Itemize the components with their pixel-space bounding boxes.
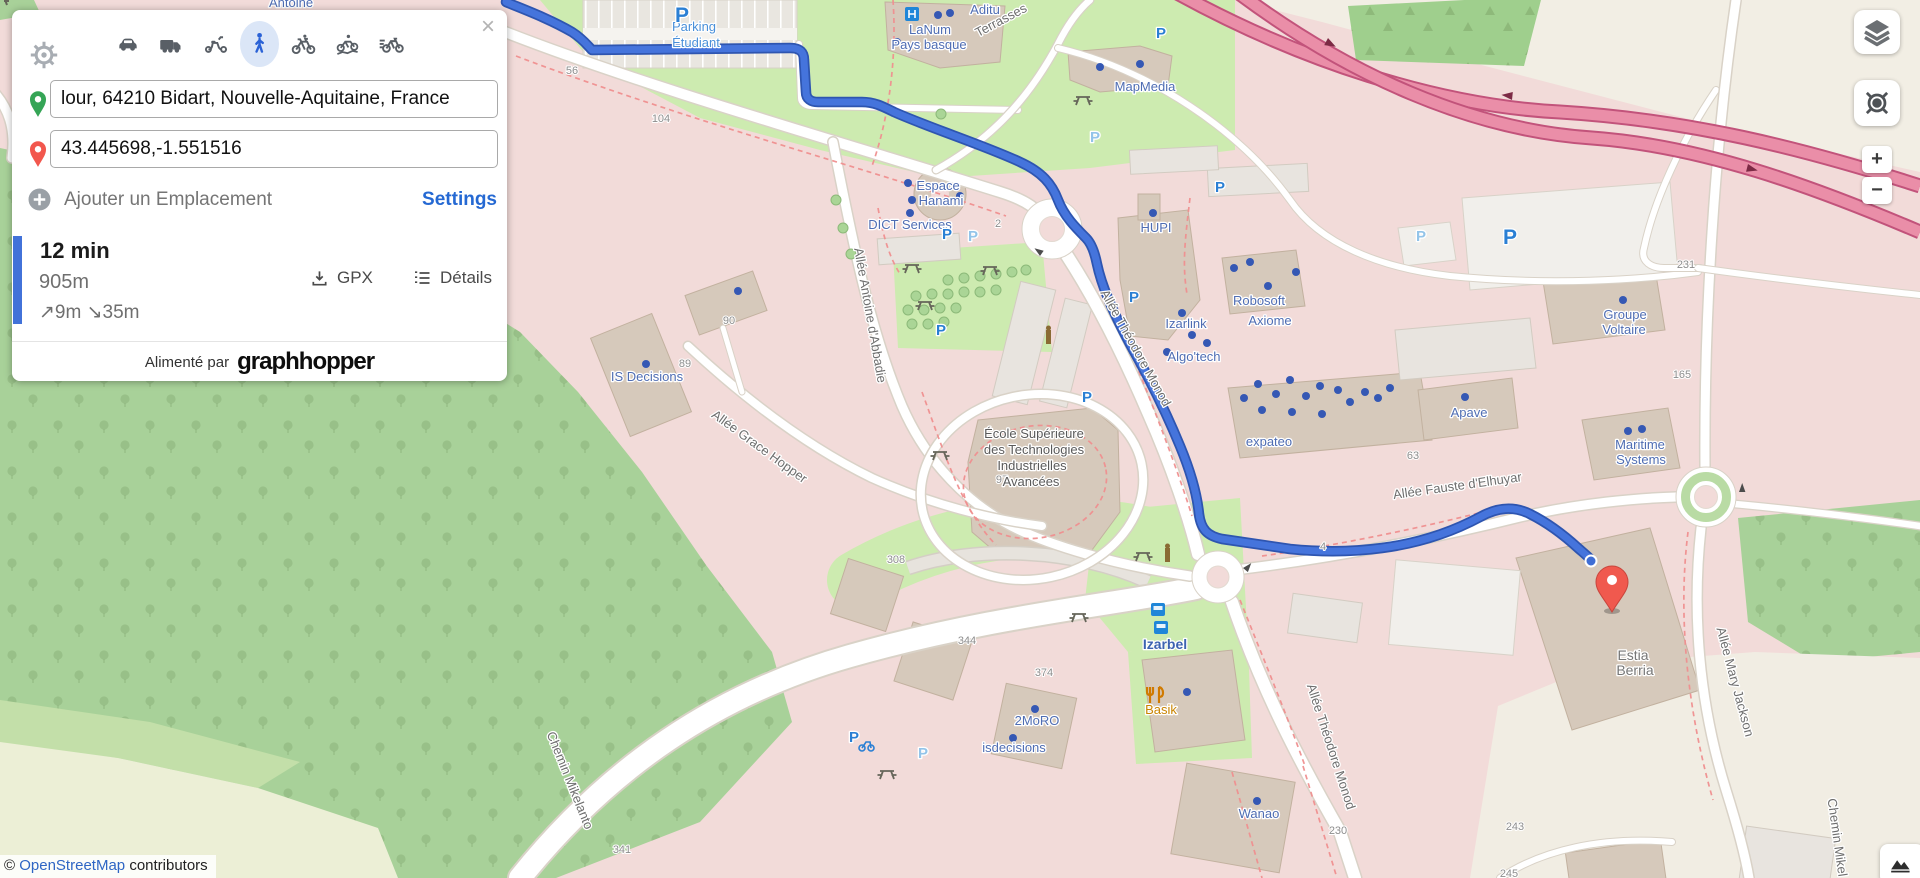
map-label: isdecisions bbox=[982, 740, 1046, 755]
route-elevation: ↗9m ↘35m bbox=[39, 301, 140, 324]
panel-footer: Alimenté par graphhopper bbox=[12, 341, 507, 382]
mode-mountain-bike[interactable] bbox=[328, 21, 367, 67]
contributors-text: contributors bbox=[129, 857, 207, 874]
map-label: des Technologies bbox=[984, 442, 1085, 457]
map-label: 2MoRO bbox=[1015, 713, 1060, 728]
origin-input[interactable] bbox=[50, 80, 498, 118]
zoom-out-button[interactable]: − bbox=[1862, 177, 1892, 204]
map-label: Basik bbox=[1145, 702, 1177, 717]
app-stage: AntoineTerrassesAllée Antoine d'AbbadieA… bbox=[0, 0, 1920, 878]
map-label: Groupe bbox=[1603, 307, 1646, 322]
map-label: 104 bbox=[652, 113, 670, 125]
map-label: Berria bbox=[1616, 662, 1654, 678]
route-color-bar bbox=[13, 236, 22, 324]
map-label: 308 bbox=[887, 554, 905, 566]
add-location-row: Ajouter un Emplacement Settings bbox=[12, 186, 507, 218]
map-label: 344 bbox=[958, 635, 976, 647]
locate-icon bbox=[1860, 86, 1894, 120]
map-label: expateo bbox=[1246, 434, 1292, 449]
map-label: 90 bbox=[723, 315, 735, 327]
vehicle-mode-selector bbox=[108, 21, 411, 67]
map-label: Pays basque bbox=[891, 37, 966, 52]
map-label: 231 bbox=[1677, 259, 1695, 271]
copyright-symbol: © bbox=[4, 857, 15, 874]
map-label: P bbox=[1503, 226, 1517, 249]
parking-lot bbox=[583, 0, 797, 68]
map-label: Étudiant bbox=[672, 35, 720, 50]
powered-by-text: Alimenté par bbox=[145, 354, 229, 371]
map-label: Hanami bbox=[919, 193, 964, 208]
map-label: Wanao bbox=[1239, 806, 1280, 821]
osm-link[interactable]: OpenStreetMap bbox=[19, 857, 125, 874]
map-label: P bbox=[1082, 389, 1092, 406]
map-label: 63 bbox=[1407, 450, 1419, 462]
map-label: 2 bbox=[995, 218, 1001, 230]
map-label: Aditu bbox=[970, 2, 1000, 17]
map-label: P bbox=[1416, 228, 1426, 245]
map-label: École Supérieure bbox=[984, 426, 1084, 441]
map-label: 56 bbox=[566, 65, 578, 77]
close-icon[interactable]: × bbox=[475, 14, 501, 40]
map-label: Industrielles bbox=[997, 458, 1067, 473]
map-label: P bbox=[942, 226, 952, 243]
map-label: LaNum bbox=[909, 22, 951, 37]
map-label: P bbox=[936, 322, 946, 339]
map-label: 243 bbox=[1506, 821, 1524, 833]
mode-car[interactable] bbox=[108, 21, 147, 67]
map-label: 165 bbox=[1673, 369, 1691, 381]
mode-racing-bike[interactable] bbox=[372, 21, 411, 67]
graphhopper-logo[interactable]: graphhopper bbox=[237, 348, 374, 376]
map-label: 4 bbox=[1320, 541, 1326, 553]
map-label: Apave bbox=[1451, 405, 1488, 420]
add-location-button[interactable]: Ajouter un Emplacement bbox=[64, 189, 272, 211]
map-label: P bbox=[1129, 289, 1139, 306]
map-label: Avancées bbox=[1003, 474, 1060, 489]
route-duration: 12 min bbox=[40, 238, 110, 264]
map-label: Robosoft bbox=[1233, 293, 1285, 308]
map-label: 245 bbox=[1500, 868, 1518, 878]
download-icon bbox=[310, 269, 329, 288]
map-label: HUPI bbox=[1140, 220, 1171, 235]
gpx-download-button[interactable]: GPX bbox=[310, 268, 373, 288]
map-label: P bbox=[1215, 179, 1225, 196]
map-label: P bbox=[1090, 129, 1100, 146]
map-label: Systems bbox=[1616, 452, 1666, 467]
destination-input[interactable] bbox=[50, 130, 498, 168]
map-label: DICT Services bbox=[868, 217, 952, 232]
map-label: Maritime bbox=[1615, 437, 1665, 452]
route-panel: × Ajouter un Emplacement Settings 12 min… bbox=[12, 10, 507, 381]
map-label: MapMedia bbox=[1115, 79, 1176, 94]
origin-pin-icon bbox=[25, 88, 51, 118]
attribution: © OpenStreetMap contributors bbox=[0, 855, 216, 878]
route-distance: 905m bbox=[39, 271, 89, 294]
map-label: IS Decisions bbox=[611, 369, 684, 384]
map-label: P bbox=[918, 745, 928, 762]
elevation-profile-button[interactable] bbox=[1880, 844, 1920, 878]
zoom-in-button[interactable]: + bbox=[1862, 146, 1892, 173]
settings-link[interactable]: Settings bbox=[422, 189, 497, 211]
map-label: 230 bbox=[1329, 825, 1347, 837]
map-label: Algo'tech bbox=[1167, 349, 1220, 364]
mountain-icon bbox=[1889, 853, 1915, 875]
map-label: P bbox=[849, 729, 859, 746]
layers-button[interactable] bbox=[1854, 10, 1900, 54]
map-label: Voltaire bbox=[1602, 322, 1645, 337]
mode-walking[interactable] bbox=[240, 21, 279, 67]
map-label: P bbox=[1156, 25, 1166, 42]
map-label: Izarlink bbox=[1165, 316, 1207, 331]
map-label: P bbox=[968, 228, 978, 245]
map-label: 341 bbox=[613, 844, 631, 856]
map-label: P bbox=[675, 4, 689, 27]
locate-button[interactable] bbox=[1854, 80, 1900, 126]
mode-bike[interactable] bbox=[284, 21, 323, 67]
board-icon bbox=[905, 7, 919, 21]
list-icon bbox=[412, 268, 432, 288]
mode-truck[interactable] bbox=[152, 21, 191, 67]
settings-gear-button[interactable] bbox=[26, 36, 64, 76]
layers-icon bbox=[1861, 16, 1893, 48]
map-label: Izarbel bbox=[1143, 636, 1187, 652]
map-label: Axiome bbox=[1248, 313, 1291, 328]
map-label: Estia bbox=[1617, 647, 1648, 663]
map-label: 374 bbox=[1035, 667, 1053, 679]
map-label: Espace bbox=[916, 178, 959, 193]
details-button[interactable]: Détails bbox=[412, 268, 492, 288]
map-label: Antoine bbox=[269, 0, 313, 10]
mode-scooter[interactable] bbox=[196, 21, 235, 67]
destination-pin-icon bbox=[25, 138, 51, 168]
plus-icon[interactable] bbox=[28, 188, 51, 211]
